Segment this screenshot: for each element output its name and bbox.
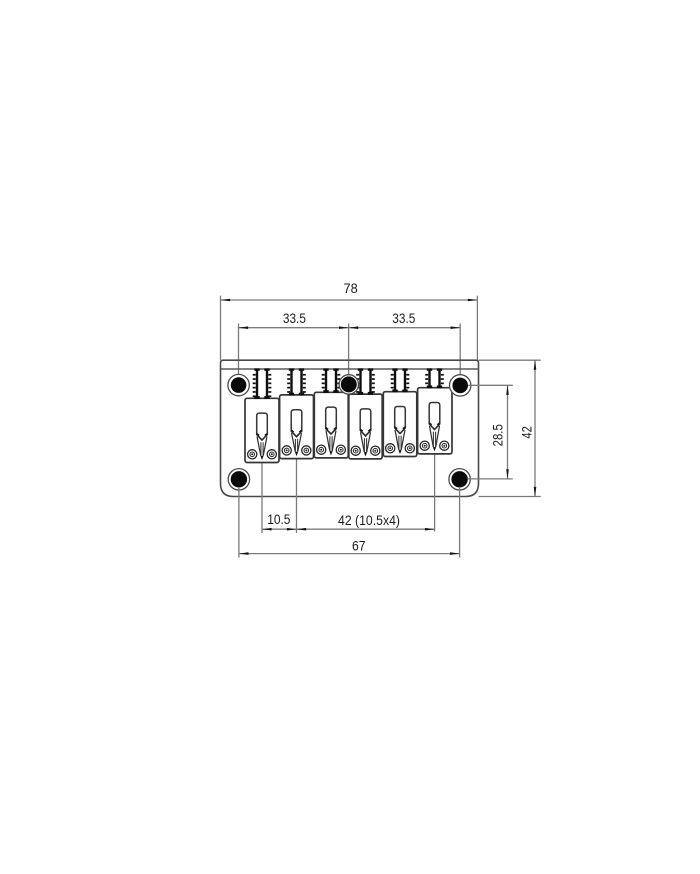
svg-text:67: 67 xyxy=(352,537,366,553)
svg-text:33.5: 33.5 xyxy=(283,310,306,326)
svg-text:42: 42 xyxy=(519,426,535,439)
svg-text:78: 78 xyxy=(344,280,358,296)
svg-text:28.5: 28.5 xyxy=(490,424,506,446)
svg-text:33.5: 33.5 xyxy=(392,310,415,326)
svg-text:42 (10.5x4): 42 (10.5x4) xyxy=(338,512,400,528)
svg-text:10.5: 10.5 xyxy=(267,511,290,527)
